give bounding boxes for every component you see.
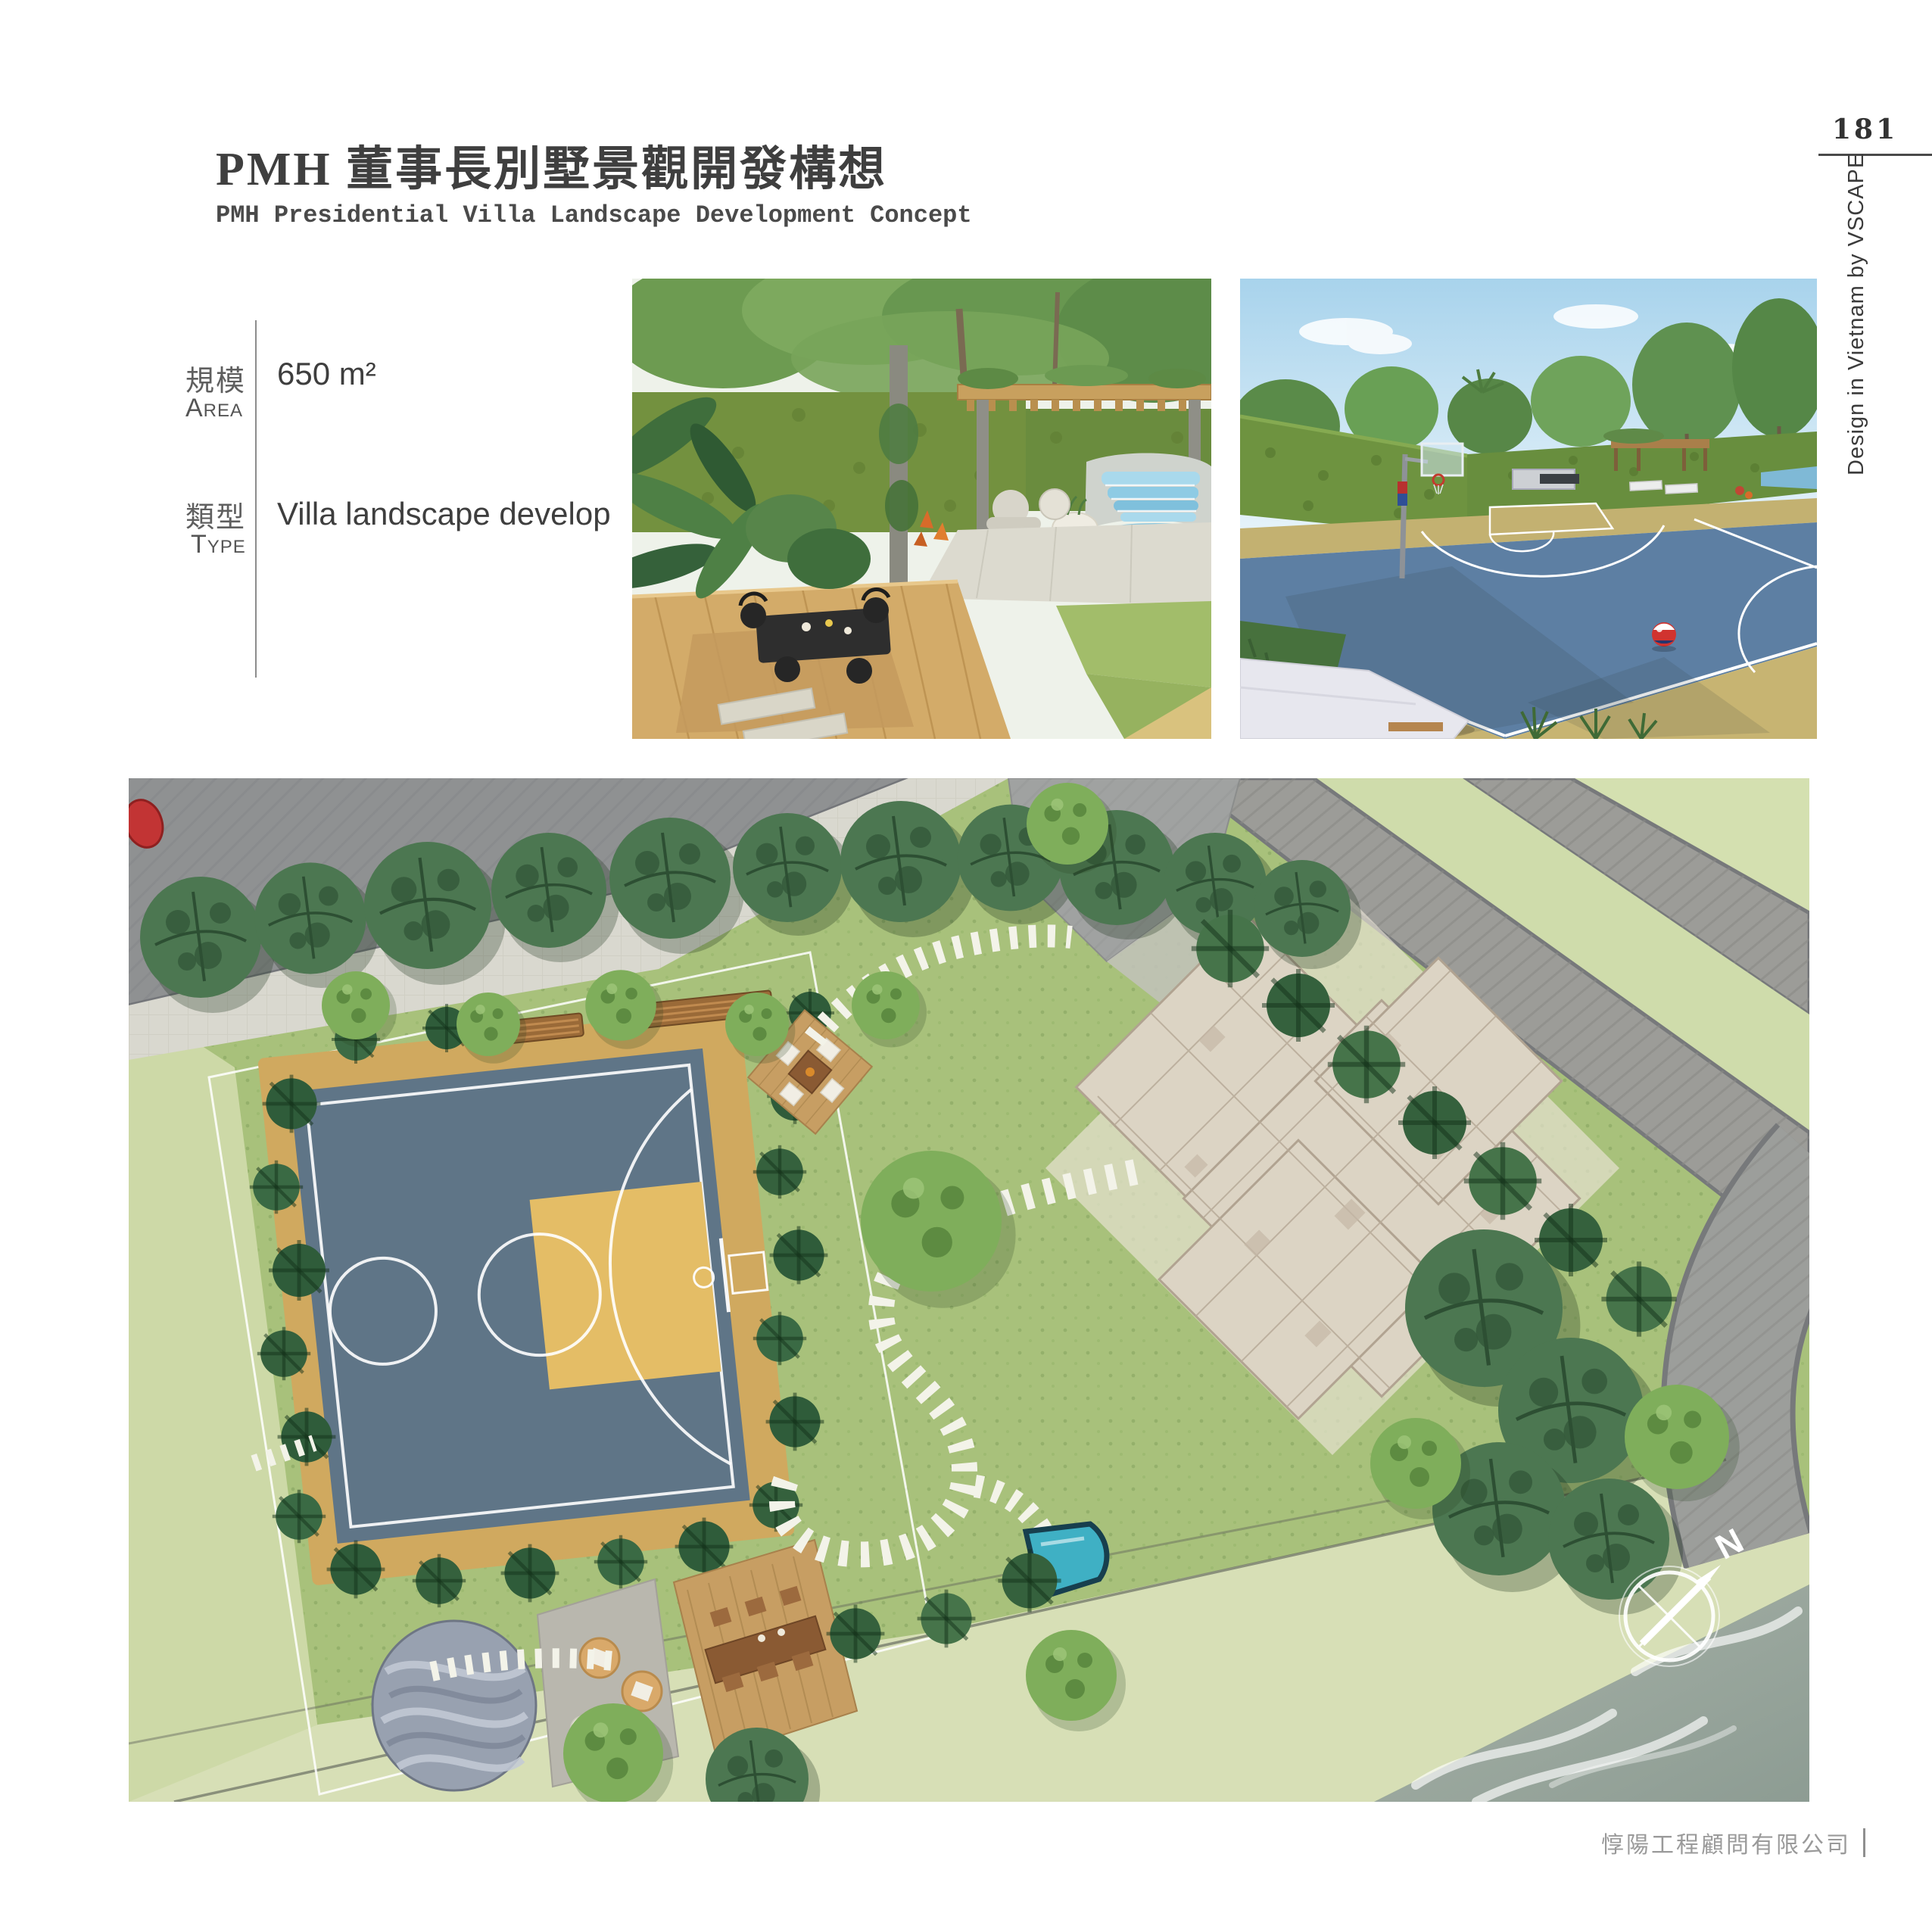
portfolio-page: PMH 董事長別墅景觀開發構想 PMH Presidential Villa L… [0,0,1932,1932]
court-render-art [1240,279,1817,739]
page-number: 181 [1832,114,1898,145]
area-label-en: Area [185,394,243,423]
area-value: 650 m² [277,356,376,392]
garden-render-art [632,279,1211,739]
title-block: PMH 董事長別墅景觀開發構想 PMH Presidential Villa L… [216,144,972,229]
side-credit: Design in Vietnam by VSCAPE [1844,157,1869,475]
page-number-rule [1818,154,1932,156]
type-label-zh: 類型 [185,494,246,535]
area-label-zh: 規模 [185,357,246,399]
wood-deck [632,581,1011,739]
basketball-court-plan [257,1008,795,1585]
footer-company: 惇陽工程顧問有限公司 [1601,1826,1851,1859]
footer-divider [1863,1828,1865,1857]
curved-road [1728,1168,1809,1550]
siteplan-art: N [129,778,1809,1802]
zen-garden [372,1621,536,1790]
render-garden-figure [632,279,1211,739]
basketball [1652,622,1676,652]
meta-divider [255,320,257,678]
siteplan-figure: N [129,778,1809,1802]
type-value: Villa landscape develop [277,496,611,532]
page-title-zh: PMH 董事長別墅景觀開發構想 [216,144,972,195]
type-label-en: Type [191,530,246,559]
render-court-figure [1240,279,1817,739]
footer: 惇陽工程顧問有限公司 [1601,1826,1865,1859]
page-title-en: PMH Presidential Villa Landscape Develop… [216,201,972,229]
